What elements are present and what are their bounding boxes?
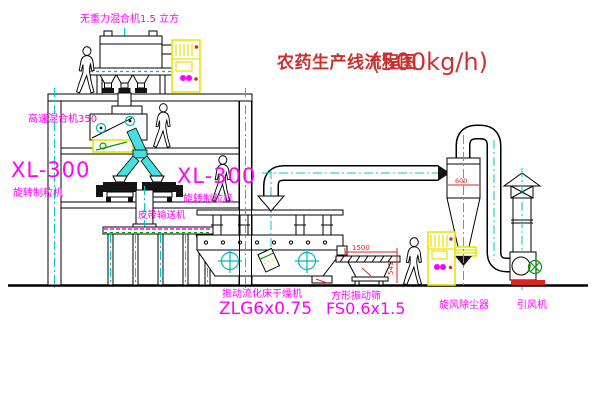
process-flow-diagram: 1500 541 600 无重力混合机1.5 立方 农药生产线流程图 (500k… — [0, 0, 600, 403]
dim-screen-height: 541 — [387, 262, 395, 275]
y-splitter-chute — [113, 150, 164, 182]
label-granulator-right-model: XL-300 — [177, 164, 256, 188]
control-cabinet-top — [172, 40, 200, 92]
motor-coil-icon — [180, 75, 186, 81]
page-title-capacity: (500kg/h) — [371, 48, 488, 76]
mixer-discharge-hoppers — [100, 75, 149, 93]
label-granulator-left-name: 旋转制粒机 — [13, 186, 63, 199]
dim-cyclone-width: 600 — [455, 177, 467, 185]
control-cabinet-right — [428, 232, 455, 285]
induced-draft-fan — [510, 252, 545, 285]
fluid-bed-dryer — [197, 210, 343, 285]
motor-coil-icon — [434, 264, 440, 270]
dryer-discharge — [312, 276, 332, 283]
high-speed-mixer — [90, 106, 147, 153]
granulator-left-machine — [96, 182, 137, 202]
conveyor-legs — [108, 234, 210, 285]
motor-coil-icon — [440, 264, 446, 270]
dryer-exhaust-hood — [258, 196, 284, 211]
label-dryer-model: ZLG6x0.75 — [219, 299, 312, 319]
label-granulator-right-name: 旋转制粒机 — [183, 192, 233, 205]
fan-base — [511, 280, 545, 285]
motor-coil-icon — [186, 75, 192, 81]
label-granulator-left-model: XL-300 — [11, 158, 90, 182]
label-high-speed-mixer: 高速混合机350 — [28, 112, 97, 125]
person-silhouette-icon — [77, 47, 94, 93]
label-belt-conveyor: 皮带输送机 — [138, 209, 186, 221]
diagram-svg: 1500 541 600 无重力混合机1.5 立方 农药生产线流程图 (500k… — [0, 0, 600, 403]
label-screen-model: FS0.6x1.5 — [326, 299, 405, 318]
dim-screen-length: 1500 — [352, 244, 370, 252]
label-gravity-mixer: 无重力混合机1.5 立方 — [80, 12, 179, 25]
label-fan: 引风机 — [517, 298, 547, 311]
granulator-down-duct — [133, 186, 156, 232]
person-silhouette-icon — [154, 104, 171, 148]
label-cyclone: 旋风除尘器 — [439, 298, 489, 311]
person-silhouette-icon — [404, 238, 422, 285]
